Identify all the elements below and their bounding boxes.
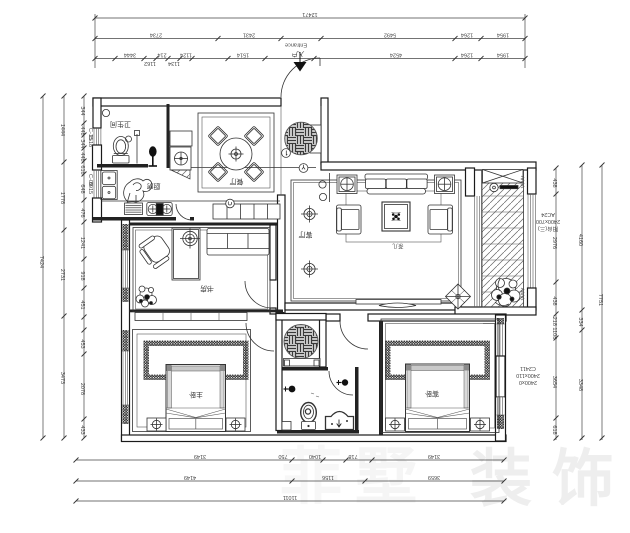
svg-text:AC24: AC24	[541, 211, 555, 217]
svg-text:墅: 墅	[355, 443, 417, 512]
svg-text:客卧: 客卧	[425, 390, 439, 399]
svg-text:主卧: 主卧	[189, 391, 203, 400]
svg-text:5492: 5492	[384, 32, 396, 38]
svg-text:1778: 1778	[59, 192, 65, 204]
svg-text:饰: 饰	[552, 445, 614, 514]
svg-text:1162: 1162	[144, 60, 156, 66]
svg-text:438: 438	[551, 296, 557, 305]
svg-text:2734: 2734	[150, 32, 162, 38]
svg-text:618: 618	[551, 425, 557, 434]
svg-text:3348: 3348	[577, 379, 583, 391]
svg-text:11011: 11011	[283, 494, 297, 500]
svg-text:Entrance: Entrance	[285, 42, 307, 48]
svg-text:客厅: 客厅	[299, 231, 313, 240]
svg-text:4149: 4149	[184, 474, 196, 480]
svg-text:334: 334	[577, 317, 583, 326]
svg-text:书房: 书房	[200, 285, 214, 294]
svg-text:2400x110: 2400x110	[516, 372, 540, 378]
svg-text:卫生间: 卫生间	[110, 120, 131, 129]
svg-text:616: 616	[79, 165, 85, 174]
svg-text:阳台(三): 阳台(三)	[538, 225, 558, 233]
svg-text:438: 438	[551, 178, 557, 187]
svg-text:装: 装	[470, 445, 532, 514]
svg-text:12471: 12471	[302, 11, 317, 17]
svg-text:1124: 1124	[180, 52, 192, 58]
svg-text:7424: 7424	[38, 256, 44, 268]
svg-text:2078: 2078	[79, 383, 85, 395]
svg-text:7751: 7751	[597, 294, 603, 306]
svg-text:3149: 3149	[428, 453, 440, 459]
svg-text:厨房: 厨房	[147, 182, 161, 191]
svg-text:448: 448	[79, 152, 85, 161]
svg-text:344: 344	[79, 139, 85, 148]
svg-text:C2411: C2411	[520, 365, 536, 371]
svg-text:476: 476	[79, 208, 85, 217]
svg-text:2400x0: 2400x0	[519, 379, 537, 385]
svg-text:4524: 4524	[390, 52, 402, 58]
svg-text:1444: 1444	[59, 124, 65, 136]
svg-text:1040: 1040	[309, 453, 321, 459]
svg-text:1518: 1518	[87, 135, 93, 147]
svg-text:344: 344	[79, 106, 85, 115]
svg-text:1156: 1156	[322, 474, 334, 480]
svg-text:茶几: 茶几	[392, 242, 404, 250]
svg-text:1954: 1954	[497, 52, 509, 58]
svg-text:0915: 0915	[87, 182, 93, 194]
svg-text:2431: 2431	[243, 32, 255, 38]
svg-text:1264: 1264	[461, 32, 473, 38]
svg-text:1514: 1514	[237, 52, 249, 58]
svg-text:1264: 1264	[461, 52, 473, 58]
svg-text:1134: 1134	[168, 60, 180, 66]
svg-text:1954: 1954	[497, 32, 509, 38]
svg-text:2976: 2976	[551, 237, 557, 249]
svg-text:214: 214	[157, 52, 166, 58]
svg-text:218 1108: 218 1108	[551, 317, 557, 340]
svg-text:4160: 4160	[577, 234, 583, 246]
svg-text:3654: 3654	[551, 376, 557, 388]
svg-text:2731: 2731	[59, 269, 65, 281]
svg-text:入户: 入户	[292, 50, 305, 59]
svg-text:1241: 1241	[79, 237, 85, 249]
svg-text:451: 451	[79, 300, 85, 309]
svg-text:918: 918	[79, 271, 85, 280]
svg-text:2400x700: 2400x700	[536, 218, 560, 224]
svg-text:448: 448	[79, 126, 85, 135]
svg-text:3473: 3473	[59, 372, 65, 384]
svg-text:3659: 3659	[428, 474, 440, 480]
svg-text:453: 453	[79, 339, 85, 348]
svg-text:3149: 3149	[194, 453, 206, 459]
svg-text:750: 750	[278, 453, 287, 459]
svg-text:433: 433	[79, 425, 85, 434]
svg-text:餐厅: 餐厅	[230, 178, 244, 187]
svg-text:648: 648	[79, 184, 85, 193]
svg-text:3444: 3444	[124, 52, 136, 58]
svg-text:718: 718	[348, 453, 357, 459]
